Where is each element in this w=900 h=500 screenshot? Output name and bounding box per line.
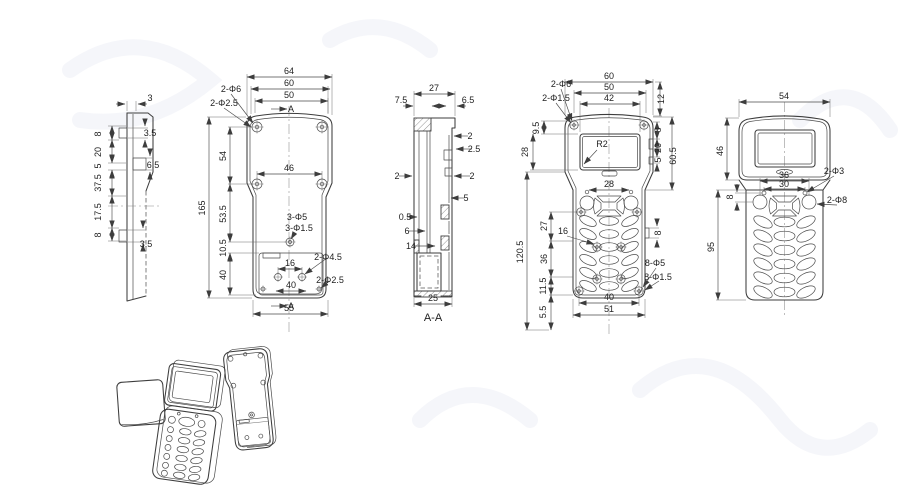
dim-label: 6.5 — [147, 160, 160, 170]
dim-label: 120.5 — [515, 241, 525, 264]
dim-label: 20 — [93, 147, 103, 157]
dim-label: 9.5 — [531, 122, 541, 135]
box-corner-hole — [260, 286, 267, 293]
dim-label: 54 — [779, 91, 789, 101]
dim-label: 46 — [715, 146, 725, 156]
dim-label: 5 — [93, 163, 103, 168]
dim-label: 50 — [284, 90, 294, 100]
front-shell-view: 60 50 42 12 2-Φ6 2-Φ1.5 9.5 28 8 20 5 60… — [515, 71, 678, 335]
watermark — [70, 27, 890, 448]
screw-boss — [316, 121, 329, 134]
dim-label: 2.5 — [468, 144, 481, 154]
battery-box-notch — [263, 253, 280, 258]
back-outline — [247, 113, 332, 298]
screw-boss — [592, 242, 603, 253]
technical-drawing-page: 3 8 20 5 37.5 17.5 8 3.5 6.5 3.5 — [0, 0, 900, 500]
dim-label: 37.5 — [93, 174, 103, 192]
dim-label: 8 — [93, 131, 103, 136]
dim-label: 7.5 — [395, 95, 408, 105]
screen-window — [580, 134, 640, 170]
section-caption: A-A — [424, 312, 443, 324]
dim-label: 165 — [197, 200, 207, 215]
dim-label: 16 — [558, 226, 568, 236]
dim-label: 30 — [779, 179, 789, 189]
dim-label: 8 — [653, 127, 663, 132]
dim-label: 2 — [394, 171, 399, 181]
dim-label: 54 — [218, 151, 228, 161]
hole-callout: 3-Φ5 — [287, 212, 307, 222]
side-tab-bottom — [119, 230, 127, 242]
hole-callout: 8-Φ1.5 — [644, 272, 672, 282]
dim-label: 25 — [428, 293, 438, 303]
dim-label: 28 — [604, 179, 614, 189]
iso-back-shell — [223, 346, 280, 451]
drawing-canvas: 3 8 20 5 37.5 17.5 8 3.5 6.5 3.5 — [0, 0, 900, 500]
iso-front-shell — [152, 359, 230, 486]
hole-callout: 2-Φ2.5 — [210, 98, 238, 108]
dim-label: 40 — [286, 280, 296, 290]
function-key — [802, 195, 816, 209]
radius-callout: R2 — [596, 139, 608, 149]
dim-label: 40 — [604, 292, 614, 302]
dim-label: 5 — [653, 157, 663, 162]
dim-label: 10.5 — [218, 239, 228, 257]
dim-label: 14 — [406, 241, 416, 251]
hole-callout: 2-Φ6 — [551, 79, 571, 89]
latch-slot — [602, 171, 617, 176]
hole-callout: 2-Φ6 — [221, 84, 241, 94]
dim-label: 51 — [604, 304, 614, 314]
dim-label: 20 — [653, 143, 663, 153]
dim-label: 12 — [656, 94, 666, 104]
hole-callout: 2-Φ2.5 — [316, 275, 344, 285]
dim-label: 50 — [604, 82, 614, 92]
hole-callout: 2-Φ8 — [827, 195, 847, 205]
dim-label: 11.5 — [538, 278, 548, 295]
box-corner-hole — [316, 286, 323, 293]
dim-label: 27 — [539, 221, 549, 231]
dim-label: 53.5 — [218, 205, 228, 223]
screw-boss — [316, 178, 329, 191]
isometric-views — [117, 346, 280, 486]
dim-label: 36 — [539, 254, 549, 264]
hole-callout: 2-Φ4.5 — [314, 252, 342, 262]
dim-label: 8 — [725, 194, 735, 199]
back-shell-view: 64 60 50 A A 165 54 53.5 10.5 40 46 2-Φ6… — [197, 66, 344, 332]
dim-label: 3 — [147, 93, 152, 103]
iso-panel — [117, 379, 166, 426]
dim-label: 64 — [284, 66, 294, 76]
screw-boss — [616, 242, 627, 253]
function-key — [753, 195, 767, 209]
dim-label: 17.5 — [93, 203, 103, 221]
dim-label: 60.5 — [668, 147, 678, 165]
dim-label: 46 — [284, 163, 294, 173]
side-notch — [645, 228, 649, 238]
screen-bezel — [755, 130, 815, 167]
dim-label: 3.5 — [144, 128, 157, 138]
dim-label: 42 — [604, 93, 614, 103]
hole-callout: 2-Φ1.5 — [542, 93, 570, 103]
assembled-front-view: 54 46 36 30 8 95 2-Φ3 2-Φ8 — [706, 91, 847, 316]
dim-label: 55 — [284, 303, 294, 313]
section-boss — [441, 236, 449, 250]
dim-label: 28 — [520, 147, 530, 157]
screw-boss — [569, 120, 580, 131]
dim-label: 8 — [93, 232, 103, 237]
dim-label: 27 — [429, 83, 439, 93]
section-dimension-lines — [399, 91, 472, 307]
hole-callout: 8-Φ5 — [645, 258, 665, 268]
dim-label: 16 — [285, 258, 295, 268]
dim-label: 6.5 — [462, 95, 475, 105]
hole-callout: 2-Φ3 — [824, 166, 844, 176]
screw-boss — [251, 178, 264, 191]
dim-label: 95 — [706, 242, 716, 252]
dim-label: 8 — [653, 230, 663, 235]
dim-label: 0.5 — [399, 212, 412, 222]
dim-label: 2 — [469, 171, 474, 181]
dim-label: 60 — [284, 78, 294, 88]
dim-label: 5 — [463, 193, 468, 203]
dim-label: 6 — [404, 226, 409, 236]
hole-callout: 3-Φ1.5 — [285, 223, 313, 233]
section-battery-box — [417, 253, 441, 291]
section-top-wall — [414, 118, 431, 131]
box-hole — [273, 272, 283, 282]
center-hole — [285, 237, 296, 248]
dim-label: 2 — [467, 131, 472, 141]
section-boss — [441, 205, 449, 219]
section-view: 27 7.5 6.5 2 2.5 2 2 5 0.5 6 14 25 A-A — [394, 83, 480, 324]
dim-label: 40 — [218, 270, 228, 280]
side-rib — [133, 158, 146, 170]
dim-label: 60 — [604, 71, 614, 81]
section-arrow-label: A — [288, 104, 294, 114]
side-tab-top — [119, 128, 127, 138]
dim-label: 3.5 — [140, 239, 153, 249]
dim-label: 5.5 — [538, 306, 548, 319]
